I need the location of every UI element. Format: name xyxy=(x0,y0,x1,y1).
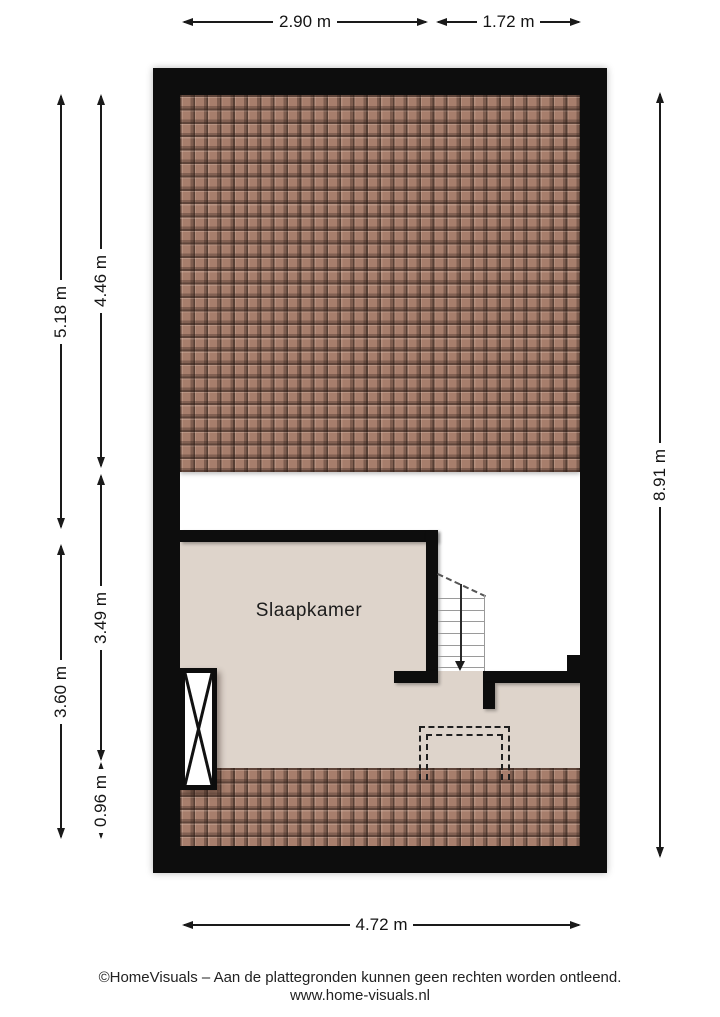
wall-stub-below-landing xyxy=(483,683,495,709)
arrow-up-icon xyxy=(656,92,664,103)
arrow-up-icon xyxy=(57,94,65,105)
arrow-up-icon xyxy=(97,474,105,485)
stair-tread xyxy=(438,645,485,646)
arrow-down-icon xyxy=(57,518,65,529)
arrow-left-icon xyxy=(436,18,447,26)
arrow-left-icon xyxy=(182,18,193,26)
bedroom-floor xyxy=(180,542,438,768)
arrow-down-icon xyxy=(57,828,65,839)
stair-headroom-dashed-line xyxy=(437,573,486,597)
dim-label: 4.46 m xyxy=(90,249,112,313)
building-interior: Slaapkamer xyxy=(180,95,580,846)
dim-label: 4.72 m xyxy=(350,914,414,936)
floorplan-page: 2.90 m 1.72 m 5.18 m 3.60 m 4.46 m 3.49 … xyxy=(0,0,720,1017)
building-outline: Slaapkamer xyxy=(153,68,607,873)
arrow-right-icon xyxy=(570,921,581,929)
roof-tiles-bottom xyxy=(180,768,580,846)
dim-label: 0.96 m xyxy=(90,769,112,833)
dim-label: 3.49 m xyxy=(90,586,112,650)
roof-tiles-top xyxy=(180,95,580,472)
footer-website: www.home-visuals.nl xyxy=(0,987,720,1005)
arrow-right-icon xyxy=(570,18,581,26)
dim-left-360: 3.60 m xyxy=(51,545,71,838)
arrow-down-icon xyxy=(656,847,664,858)
dormer-dashed-outline-inner xyxy=(426,734,503,780)
dim-bottom-472: 4.72 m xyxy=(183,915,580,935)
stair-tread xyxy=(438,633,485,634)
dim-left-446: 4.46 m xyxy=(91,95,111,467)
dim-left-096: 0.96 m xyxy=(91,763,111,838)
dim-label: 5.18 m xyxy=(50,280,72,344)
stair-direction-line xyxy=(460,584,462,662)
window-void xyxy=(180,668,217,790)
dim-left-349: 3.49 m xyxy=(91,475,111,760)
dim-label: 1.72 m xyxy=(477,11,541,33)
wall-bedroom-top xyxy=(180,530,438,542)
dim-right-891: 8.91 m xyxy=(650,93,670,857)
stair-tread xyxy=(438,621,485,622)
room-label: Slaapkamer xyxy=(180,600,438,622)
dim-top-290: 2.90 m xyxy=(183,12,427,32)
footer-disclaimer: ©HomeVisuals – Aan de plattegronden kunn… xyxy=(0,969,720,987)
dim-label: 2.90 m xyxy=(273,11,337,33)
wall-stub-left-of-stairs xyxy=(394,671,438,683)
stair-tread xyxy=(438,610,485,611)
stair-down-arrow-icon xyxy=(455,661,465,671)
arrow-down-icon xyxy=(97,457,105,468)
dim-left-518: 5.18 m xyxy=(51,95,71,528)
cross-marker-icon xyxy=(185,673,212,785)
wall-right-of-stairs xyxy=(483,671,580,683)
footer: ©HomeVisuals – Aan de plattegronden kunn… xyxy=(0,969,720,1004)
arrow-right-icon xyxy=(417,18,428,26)
dim-label: 3.60 m xyxy=(50,660,72,724)
stair-tread xyxy=(438,598,485,599)
arrow-up-icon xyxy=(57,544,65,555)
wall-notch-right xyxy=(567,655,580,671)
arrow-left-icon xyxy=(182,921,193,929)
dim-top-172: 1.72 m xyxy=(437,12,580,32)
arrow-up-icon xyxy=(97,94,105,105)
stair-tread xyxy=(438,656,485,657)
arrow-down-icon xyxy=(97,750,105,761)
dim-label: 8.91 m xyxy=(649,443,671,507)
